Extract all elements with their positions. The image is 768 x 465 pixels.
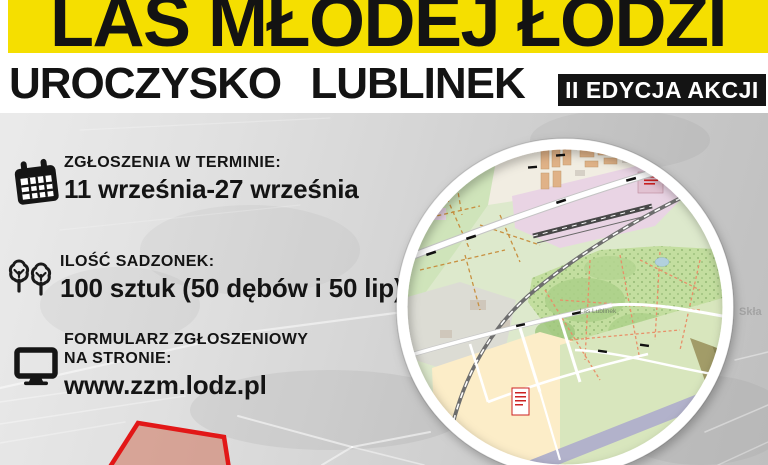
form-label: FORMULARZ ZGŁOSZENIOWY NA STRONIE: — [64, 330, 314, 368]
background-label: Skła — [739, 306, 762, 318]
form-url: www.zzm.lodz.pl — [64, 371, 314, 400]
registration-label: ZGŁOSZENIA W TERMINIE: — [64, 153, 359, 172]
registration-dates: 11 września-27 września — [64, 175, 359, 204]
monitor-icon — [8, 346, 64, 400]
info-row-registration: ZGŁOSZENIA W TERMINIE: 11 września-27 wr… — [8, 153, 359, 206]
trees-icon — [4, 258, 60, 303]
seedlings-count: 100 sztuk (50 dębów i 50 lip) — [60, 274, 402, 303]
poster-root: LAS MŁODEJ ŁODZI UROCZYSKO LUBLINEK II E… — [0, 0, 768, 465]
subtitle: UROCZYSKO LUBLINEK — [9, 62, 525, 106]
page-title: LAS MŁODEJ ŁODZI — [50, 0, 726, 53]
seedlings-label: ILOŚĆ SADZONEK: — [60, 252, 402, 271]
yellow-banner: LAS MŁODEJ ŁODZI — [8, 0, 768, 53]
edition-badge: II EDYCJA AKCJI — [558, 74, 766, 106]
info-row-form: FORMULARZ ZGŁOSZENIOWY NA STRONIE: www.z… — [8, 330, 314, 400]
info-row-seedlings: ILOŚĆ SADZONEK: 100 sztuk (50 dębów i 50… — [4, 252, 402, 303]
calendar-icon — [8, 156, 64, 206]
